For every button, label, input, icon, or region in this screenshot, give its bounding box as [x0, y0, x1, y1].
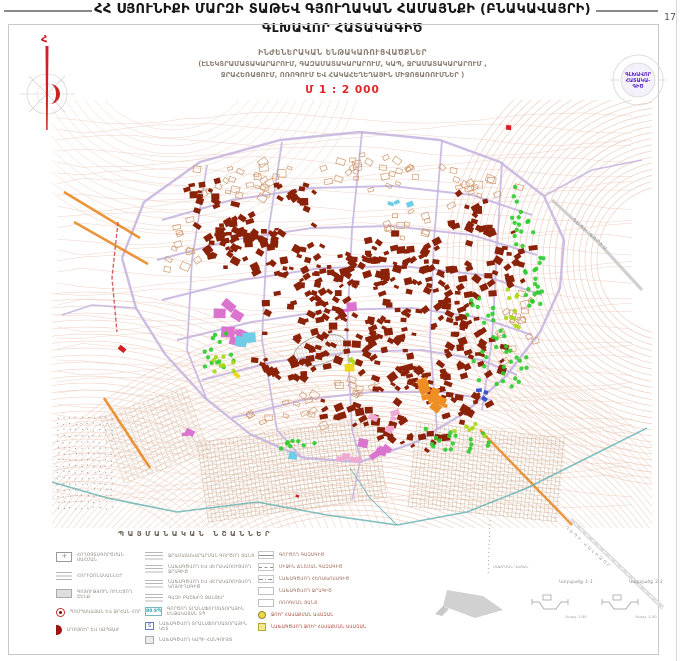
box-symbol: [258, 599, 274, 607]
legend-item: ՊՈՄՊԱԿԱՅԱՆ ԵՎ ՋՐՀԱՆ ՀՈՐ: [56, 607, 144, 617]
legend-item: ԱՂԲՅՈՒՐ ԵՎ ԿԱՊՏԱԺ: [56, 625, 144, 635]
subtitle-line1: ԻՆԺԵՆԵՐԱԿԱՆ ԵՆԹԱԿԱՌՈՒՑՎԱԾՔՆԵՐ: [0, 48, 685, 57]
pond-label: ՄԱՔՐՄԱՆ ԿԱՅԱՆ: [493, 564, 529, 569]
gray-box-sm-symbol: [145, 636, 154, 644]
subtitle-line3: ՋՐԱՀԵՌԱՑՈՒՄ, ՈՌՈԳՈՒՄ ԵՎ ՀԱԿԱՀԵՂԵՂԱՅԻՆ ՄԻ…: [0, 71, 685, 79]
legend-item: ՆԱԽԱԳԾՎՈՂ ՋՈՒՐ ՀԱՎԱՔՄԱՆ ԱՎԱԶԱՆ: [258, 623, 368, 631]
legend-label: ՀՈՂՕԳՏԱԳՈՐԾՄԱՆ ՍԱՀՄԱՆ: [77, 552, 144, 563]
legend-label: ՆԱԽԱԳԾՎՈՂ ՋՐԱԳԻԾ: [279, 588, 332, 593]
subtitle-line2: (ԷԼԵԿՏՐԱՄԱՏԱԿԱՐԱՐՈՒՄ, ԳԱԶԱՄԱՏԱԿԱՐԱՐՈՒՄ, …: [0, 60, 685, 68]
legend-label: ՋՈՒՐ ՀԱՎԱՔՄԱՆ ԱՎԱԶԱՆ: [271, 612, 333, 617]
box-symbol: [258, 587, 274, 595]
legend-label: ԳՈՅՈՒԹՅՈՒՆ ՈՒՆԵՑՈՂ ՇԵՆՔ: [77, 589, 144, 600]
cross-section-2-note: Մասշ. 1:50: [615, 615, 677, 619]
map-scale: Մ 1 : 2 000: [0, 84, 685, 96]
line-dash-symbol: [258, 563, 274, 571]
road-destination-label: ԴԵՊԻ ՀԱԼԻՁՈՐ: [564, 525, 613, 570]
legend-column-2: ՋՐԱՄԱՏԱԿԱՐԱՐՄԱՆ ԳՈՐԾՈՂ ՑԱՆՑՆԱԽԱԳԾՎՈՂ ԵՎ …: [145, 551, 257, 648]
pond-outlet: [435, 606, 449, 616]
legend-item: ՋՐԱՄԱՏԱԿԱՐԱՐՄԱՆ ԳՈՐԾՈՂ ՑԱՆՑ: [145, 551, 257, 560]
legend-label: ԳՈՐԾՈՂ ԳԱԶԱԳԻԾ: [279, 552, 325, 557]
stamp-text-line3: ԳԻԾ: [633, 84, 644, 90]
well-symbol: [56, 608, 65, 617]
legend-item: ՆԱԽԱԳԾՎՈՂ ՀԵՌԱԽՈՍԱԳԻԾ: [258, 575, 368, 583]
legend-item: 80 ՏՊԳՈՐԾՈՂ ՏՐԱՆՍՖՈՐՄԱՏՈՐԱՅԻՆ ԵՆԹԱԿԱՅԱՆ …: [145, 606, 257, 617]
legend-item: ՈՌՈԳՄԱՆ ՑԱՆՑ: [258, 599, 368, 607]
legend-label: ՆԱԽԱԳԾՎՈՂ ԵՎ ՎԵՐԱԿԱՌՈՒՑՎՈՂ ԿՈՅՈՒՂԱԳԻԾ: [168, 579, 257, 590]
cross-section-1-note: Մասշ. 1:50: [545, 615, 607, 619]
map-canvas: ԴԵՊԻ ԳՈՐԻՍ: [52, 100, 652, 530]
legend-label: ՄԻՋԻՆ ՃՆՇՄԱՆ ԳԱԶԱԳԻԾ: [279, 564, 343, 569]
legend-label: ՋՐԱՄԱՏԱԿԱՐԱՐՄԱՆ ԳՈՐԾՈՂ ՑԱՆՑ: [168, 553, 254, 558]
legend-item: ՆԱԽԱԳԾՎՈՂ ԵՎ ՎԵՐԱԿԱՌՈՒՑՎՈՂ ԿՈՅՈՒՂԱԳԻԾ: [145, 579, 257, 590]
survey-dotted-line: [488, 520, 490, 576]
legend-label: ԳՈՐԾՈՂ ՏՐԱՆՍՖՈՐՄԱՏՈՐԱՅԻՆ ԵՆԹԱԿԱՅԱՆ ՏՊ: [167, 606, 257, 617]
box-cross-symbol: [56, 552, 72, 562]
cross-section-2: Կտրվածք 2-2 Մասշ. 1:50: [615, 580, 677, 619]
legend-item: ՆԱԽԱԳԾՎՈՂ ԵՎ ՎԵՐԱԿԱՌՈՒՑՎՈՂ ՋՐԱԳԻԾ: [145, 564, 257, 575]
pipes-symbol: [145, 565, 163, 573]
legend-label: ՆԱԽԱԳԾՎՈՂ ԿԱՊԻ ՀԱՆԳՈՒՅՑ: [159, 637, 232, 642]
page-number: 17: [664, 12, 676, 23]
legend-item: ԳՈՅՈՒԹՅՈՒՆ ՈՒՆԵՑՈՂ ՇԵՆՔ: [56, 589, 144, 600]
yellow-circle-symbol: [258, 611, 266, 619]
yellow-square-symbol: [258, 623, 266, 631]
spring-symbol: [56, 625, 62, 635]
compass-needle: [46, 46, 49, 130]
legend-label: ԳԱԶԻ ԲԱՇԽԻՉ ՑԱՆՑԵՐ: [168, 595, 224, 600]
legend-item: ՀՈՐԻԶՈՆԱԿԱՆՆԵՐ: [56, 571, 144, 581]
legend-item: ՆԱԽԱԳԾՎՈՂ ՋՐԱԳԻԾ: [258, 587, 368, 595]
legend-item: ՋՈՒՐ ՀԱՎԱՔՄԱՆ ԱՎԱԶԱՆ: [258, 611, 368, 619]
legend-label: ՈՌՈԳՄԱՆ ՑԱՆՑ: [279, 600, 317, 605]
blue-box-symbol: Տ: [145, 622, 154, 630]
legend-label: ՆԱԽԱԳԾՎՈՂ ԵՎ ՎԵՐԱԿԱՌՈՒՑՎՈՂ ՋՐԱԳԻԾ: [168, 564, 257, 575]
legend-label: ՆԱԽԱԳԾՎՈՂ ՀԵՌԱԽՈՍԱԳԻԾ: [279, 576, 349, 581]
sheet: ՀՀ ՍՅՈՒՆԻՔԻ ՄԱՐԶԻ ՏԱԹԵՎ ԳՅՈՒՂԱԿԱՆ ՀԱՄԱՅՆ…: [0, 0, 685, 661]
legend-label: ՆԱԽԱԳԾՎՈՂ ՏՐԱՆՍՖՈՐՄԱՏՈՐԱՅԻՆ ԿԵՏ: [159, 621, 257, 632]
pipes-symbol: [145, 580, 163, 588]
sheet-title-line1: ՀՀ ՍՅՈՒՆԻՔԻ ՄԱՐԶԻ ՏԱԹԵՎ ԳՅՈՒՂԱԿԱՆ ՀԱՄԱՅՆ…: [0, 2, 685, 17]
compass-north-label: Հ: [41, 34, 48, 45]
cross-section-1: Կտրվածք 1-1 Մասշ. 1:50: [545, 580, 607, 619]
legend-label: ԱՂԲՅՈՒՐ ԵՎ ԿԱՊՏԱԺ: [67, 627, 119, 632]
pond-shape: [443, 590, 503, 618]
pipes-symbol: [145, 552, 163, 560]
legend-item: ՏՆԱԽԱԳԾՎՈՂ ՏՐԱՆՍՖՈՐՄԱՏՈՐԱՅԻՆ ԿԵՏ: [145, 621, 257, 632]
lines-symbol: [56, 572, 72, 580]
legend-item: ՄԻՋԻՆ ՃՆՇՄԱՆ ԳԱԶԱԳԻԾ: [258, 563, 368, 571]
legend-column-3: ԳՈՐԾՈՂ ԳԱԶԱԳԻԾՄԻՋԻՆ ՃՆՇՄԱՆ ԳԱԶԱԳԻԾՆԱԽԱԳԾ…: [258, 551, 368, 635]
gray-box-symbol: [56, 589, 72, 598]
line-dashdot-symbol: [258, 575, 274, 583]
line-solid-symbol: [258, 551, 274, 559]
legend-item: ՆԱԽԱԳԾՎՈՂ ԿԱՊԻ ՀԱՆԳՈՒՅՑ: [145, 635, 257, 644]
legend-column-1: ՀՈՂՕԳՏԱԳՈՐԾՄԱՆ ՍԱՀՄԱՆՀՈՐԻԶՈՆԱԿԱՆՆԵՐԳՈՅՈՒ…: [56, 552, 144, 643]
legend-item: ՀՈՂՕԳՏԱԳՈՐԾՄԱՆ ՍԱՀՄԱՆ: [56, 552, 144, 563]
legend-label: ՀՈՐԻԶՈՆԱԿԱՆՆԵՐ: [77, 573, 123, 578]
legend-header: ՊԱՅՄԱՆԱԿԱՆ ՆՇԱՆՆԵՐ: [118, 530, 273, 538]
legend-label: ՆԱԽԱԳԾՎՈՂ ՋՈՒՐ ՀԱՎԱՔՄԱՆ ԱՎԱԶԱՆ: [271, 624, 366, 629]
legend-item: ԳԱԶԻ ԲԱՇԽԻՉ ՑԱՆՑԵՐ: [145, 593, 257, 602]
legend-label: ՊՈՄՊԱԿԱՅԱՆ ԵՎ ՋՐՀԱՆ ՀՈՐ: [70, 609, 141, 614]
tp-box-symbol: 80 ՏՊ: [145, 607, 162, 616]
pipes-symbol: [145, 594, 163, 602]
legend-item: ԳՈՐԾՈՂ ԳԱԶԱԳԻԾ: [258, 551, 368, 559]
